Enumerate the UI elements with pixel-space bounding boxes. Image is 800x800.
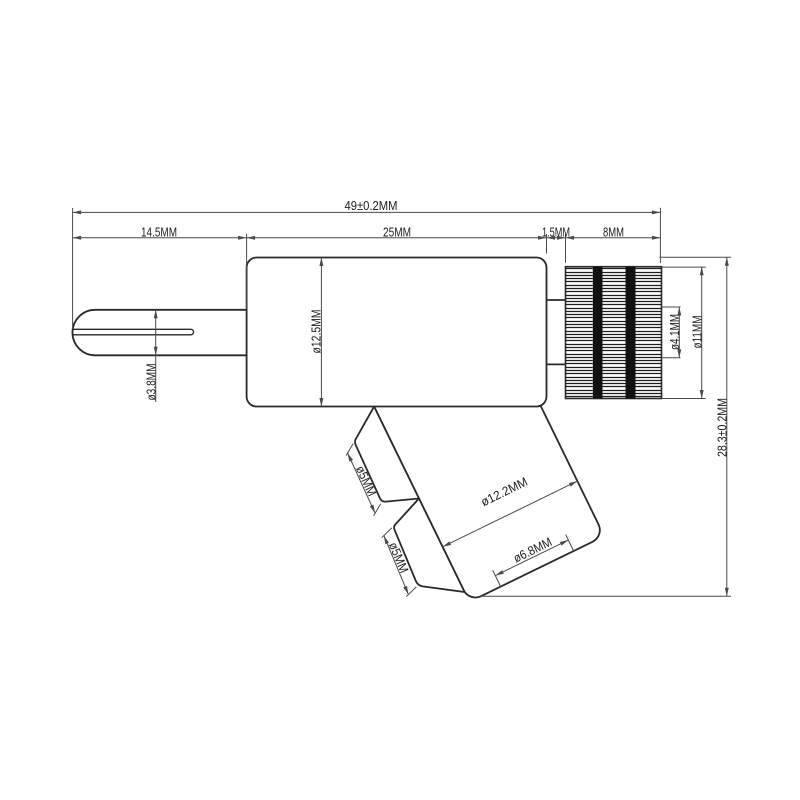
svg-text:ø11MM: ø11MM xyxy=(690,316,704,349)
svg-text:ø3.8MM: ø3.8MM xyxy=(145,364,159,401)
svg-text:14.5MM: 14.5MM xyxy=(141,225,177,239)
svg-text:8MM: 8MM xyxy=(603,225,624,239)
svg-text:28.3±0.2MM: 28.3±0.2MM xyxy=(716,398,730,457)
svg-text:25MM: 25MM xyxy=(383,225,411,239)
svg-text:ø12.5MM: ø12.5MM xyxy=(310,310,324,354)
svg-text:1.5MM: 1.5MM xyxy=(542,225,570,239)
svg-text:ø4.1MM: ø4.1MM xyxy=(668,314,682,350)
svg-text:49±0.2MM: 49±0.2MM xyxy=(345,199,398,213)
